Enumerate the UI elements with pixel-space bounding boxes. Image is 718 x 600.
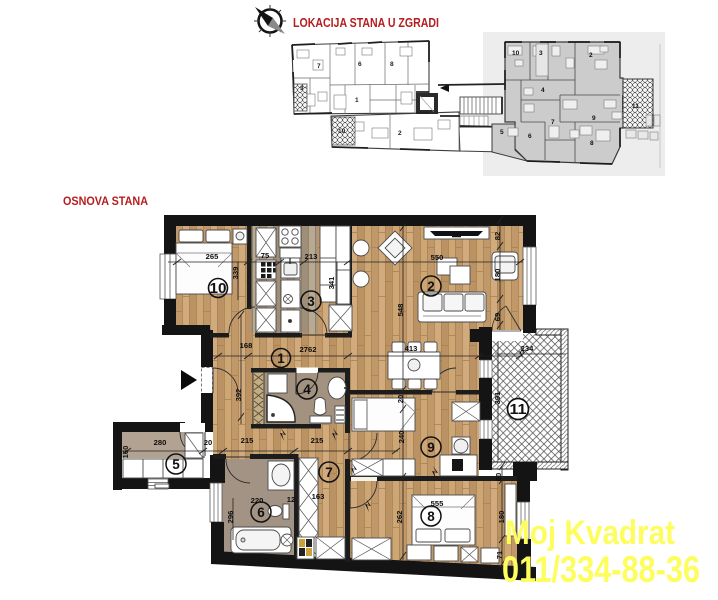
svg-text:2: 2 (398, 130, 402, 137)
svg-text:2: 2 (427, 279, 435, 294)
svg-text:280: 280 (154, 438, 167, 447)
svg-text:7: 7 (551, 119, 555, 126)
svg-text:12: 12 (287, 495, 295, 504)
svg-text:3: 3 (300, 85, 304, 92)
svg-text:LOKACIJA STANA U ZGRADI: LOKACIJA STANA U ZGRADI (293, 15, 439, 30)
svg-text:2: 2 (589, 52, 593, 59)
svg-text:240: 240 (397, 431, 406, 444)
svg-text:168: 168 (240, 341, 253, 350)
svg-text:OSNOVA STANA: OSNOVA STANA (63, 194, 148, 208)
svg-text:8: 8 (390, 61, 394, 68)
svg-text:341: 341 (327, 276, 336, 289)
svg-text:413: 413 (405, 344, 418, 353)
svg-text:6: 6 (358, 61, 362, 68)
svg-text:69: 69 (493, 313, 502, 321)
svg-text:5: 5 (500, 129, 504, 136)
svg-text:3: 3 (539, 50, 543, 57)
svg-text:9: 9 (592, 115, 596, 122)
svg-text:11: 11 (510, 401, 527, 418)
svg-text:548: 548 (396, 304, 405, 317)
svg-text:213: 213 (305, 252, 318, 261)
svg-text:7: 7 (325, 465, 333, 480)
svg-text:011/334-88-36: 011/334-88-36 (502, 549, 700, 590)
svg-text:265: 265 (206, 252, 219, 261)
svg-text:10: 10 (338, 128, 346, 135)
svg-text:550: 550 (431, 253, 444, 262)
svg-text:296: 296 (226, 511, 235, 524)
svg-text:5: 5 (172, 457, 180, 472)
svg-text:8: 8 (427, 509, 435, 524)
svg-text:7: 7 (317, 63, 321, 70)
svg-text:8: 8 (590, 140, 594, 147)
svg-text:6: 6 (528, 133, 532, 140)
svg-text:82: 82 (493, 232, 502, 240)
svg-text:20: 20 (204, 438, 212, 447)
svg-text:215: 215 (311, 436, 324, 445)
svg-text:6: 6 (257, 505, 265, 520)
svg-text:11: 11 (632, 103, 639, 110)
svg-text:10: 10 (210, 281, 227, 297)
svg-text:160: 160 (121, 446, 130, 459)
svg-text:339: 339 (231, 267, 240, 280)
svg-text:75: 75 (261, 251, 270, 260)
svg-text:215: 215 (241, 436, 254, 445)
svg-text:1: 1 (355, 97, 359, 104)
svg-text:20: 20 (396, 395, 405, 403)
svg-text:3: 3 (307, 294, 315, 309)
svg-text:4: 4 (541, 87, 545, 94)
svg-text:234: 234 (521, 344, 534, 353)
svg-text:9: 9 (427, 440, 435, 455)
svg-text:2762: 2762 (300, 345, 317, 354)
svg-text:180: 180 (493, 269, 502, 282)
svg-text:Moj Kvadrat: Moj Kvadrat (505, 514, 675, 552)
svg-text:60: 60 (494, 473, 503, 481)
svg-text:163: 163 (312, 492, 325, 501)
svg-text:392: 392 (234, 389, 243, 402)
svg-text:1: 1 (277, 351, 285, 366)
svg-text:391: 391 (493, 391, 502, 404)
svg-text:262: 262 (395, 511, 404, 524)
svg-text:10: 10 (512, 50, 520, 57)
svg-text:4: 4 (303, 382, 311, 397)
